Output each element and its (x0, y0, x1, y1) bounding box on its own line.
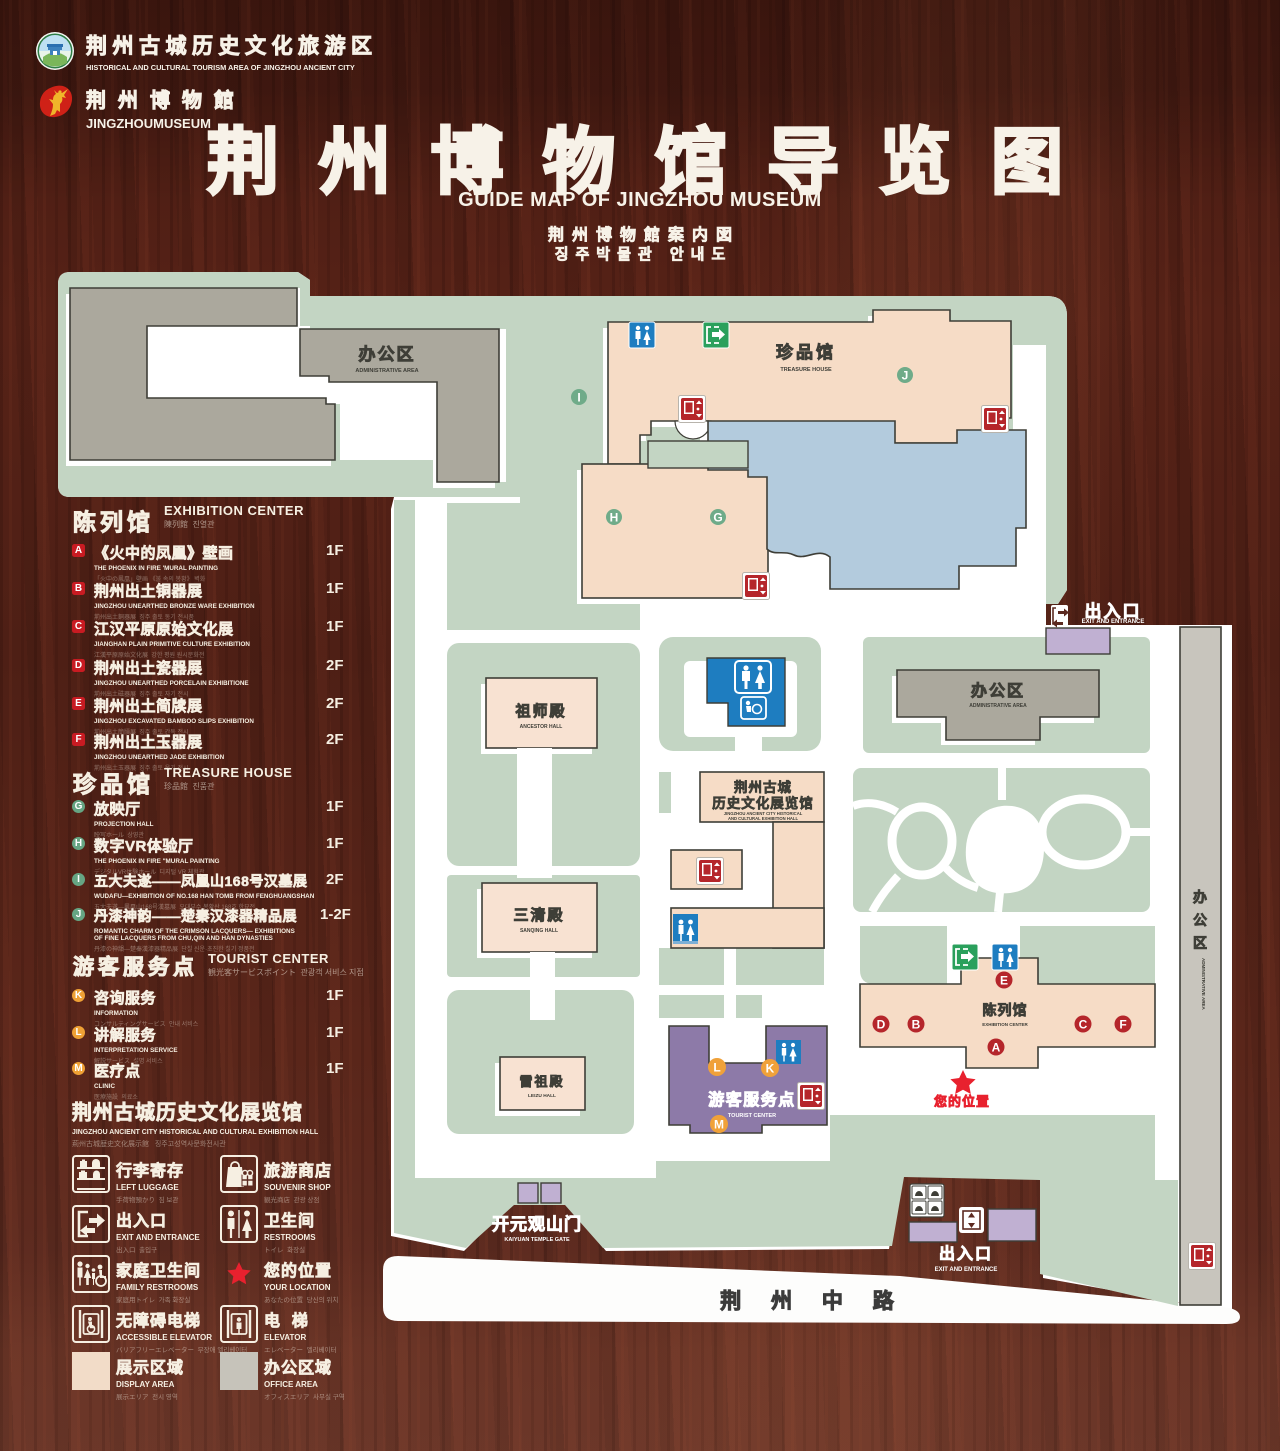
svg-text:荆 州 中 路: 荆 州 中 路 (720, 1289, 906, 1313)
svg-text:ADMINISTRATIVE AREA: ADMINISTRATIVE AREA (969, 703, 1027, 709)
svg-text:KAIYUAN TEMPLE GATE: KAIYUAN TEMPLE GATE (504, 1237, 570, 1243)
svg-text:E: E (1000, 974, 1008, 988)
svg-text:G: G (713, 511, 722, 525)
svg-text:M: M (714, 1118, 724, 1132)
svg-text:D: D (877, 1018, 886, 1032)
svg-text:EXIT AND ENTRANCE: EXIT AND ENTRANCE (935, 1267, 998, 1273)
svg-text:珍品馆: 珍品馆 (776, 342, 836, 362)
svg-text:EXHIBITION CENTER: EXHIBITION CENTER (982, 1022, 1028, 1027)
svg-text:区: 区 (1193, 935, 1207, 951)
svg-text:三清殿: 三清殿 (513, 906, 564, 924)
svg-text:AND CULTURAL EXHIBITION HALL: AND CULTURAL EXHIBITION HALL (728, 816, 799, 821)
svg-text:游客服务点: 游客服务点 (708, 1090, 796, 1109)
svg-text:办: 办 (1193, 889, 1207, 905)
svg-text:ADMINISTRATIVE AREA: ADMINISTRATIVE AREA (1201, 958, 1206, 1011)
svg-text:F: F (1119, 1018, 1126, 1032)
svg-text:C: C (1079, 1018, 1088, 1032)
svg-text:I: I (577, 391, 580, 405)
svg-text:开元观山门: 开元观山门 (492, 1214, 582, 1234)
svg-text:J: J (902, 369, 909, 383)
svg-text:荆州古城: 荆州古城 (734, 779, 792, 795)
svg-text:B: B (912, 1018, 921, 1032)
svg-text:公: 公 (1193, 912, 1207, 928)
svg-text:办公区: 办公区 (971, 681, 1025, 700)
svg-text:祖师殿: 祖师殿 (514, 702, 566, 720)
svg-text:K: K (766, 1062, 775, 1076)
svg-text:ANCESTOR HALL: ANCESTOR HALL (520, 724, 563, 730)
svg-text:TREASURE HOUSE: TREASURE HOUSE (780, 367, 832, 373)
svg-text:H: H (610, 511, 619, 525)
svg-text:您的位置: 您的位置 (934, 1094, 990, 1109)
svg-text:LEIZU HALL: LEIZU HALL (528, 1093, 556, 1099)
svg-text:陈列馆: 陈列馆 (983, 1002, 1028, 1018)
svg-text:SANQING HALL: SANQING HALL (520, 928, 558, 934)
svg-text:L: L (713, 1061, 720, 1075)
svg-text:TOURIST CENTER: TOURIST CENTER (728, 1113, 776, 1119)
svg-text:出入口: 出入口 (939, 1244, 993, 1263)
svg-text:雷祖殿: 雷祖殿 (519, 1074, 564, 1089)
svg-text:A: A (992, 1041, 1001, 1055)
svg-text:历史文化展览馆: 历史文化展览馆 (712, 795, 814, 811)
svg-text:出入口: 出入口 (1085, 601, 1142, 621)
svg-text:EXIT AND ENTRANCE: EXIT AND ENTRANCE (1082, 619, 1145, 625)
